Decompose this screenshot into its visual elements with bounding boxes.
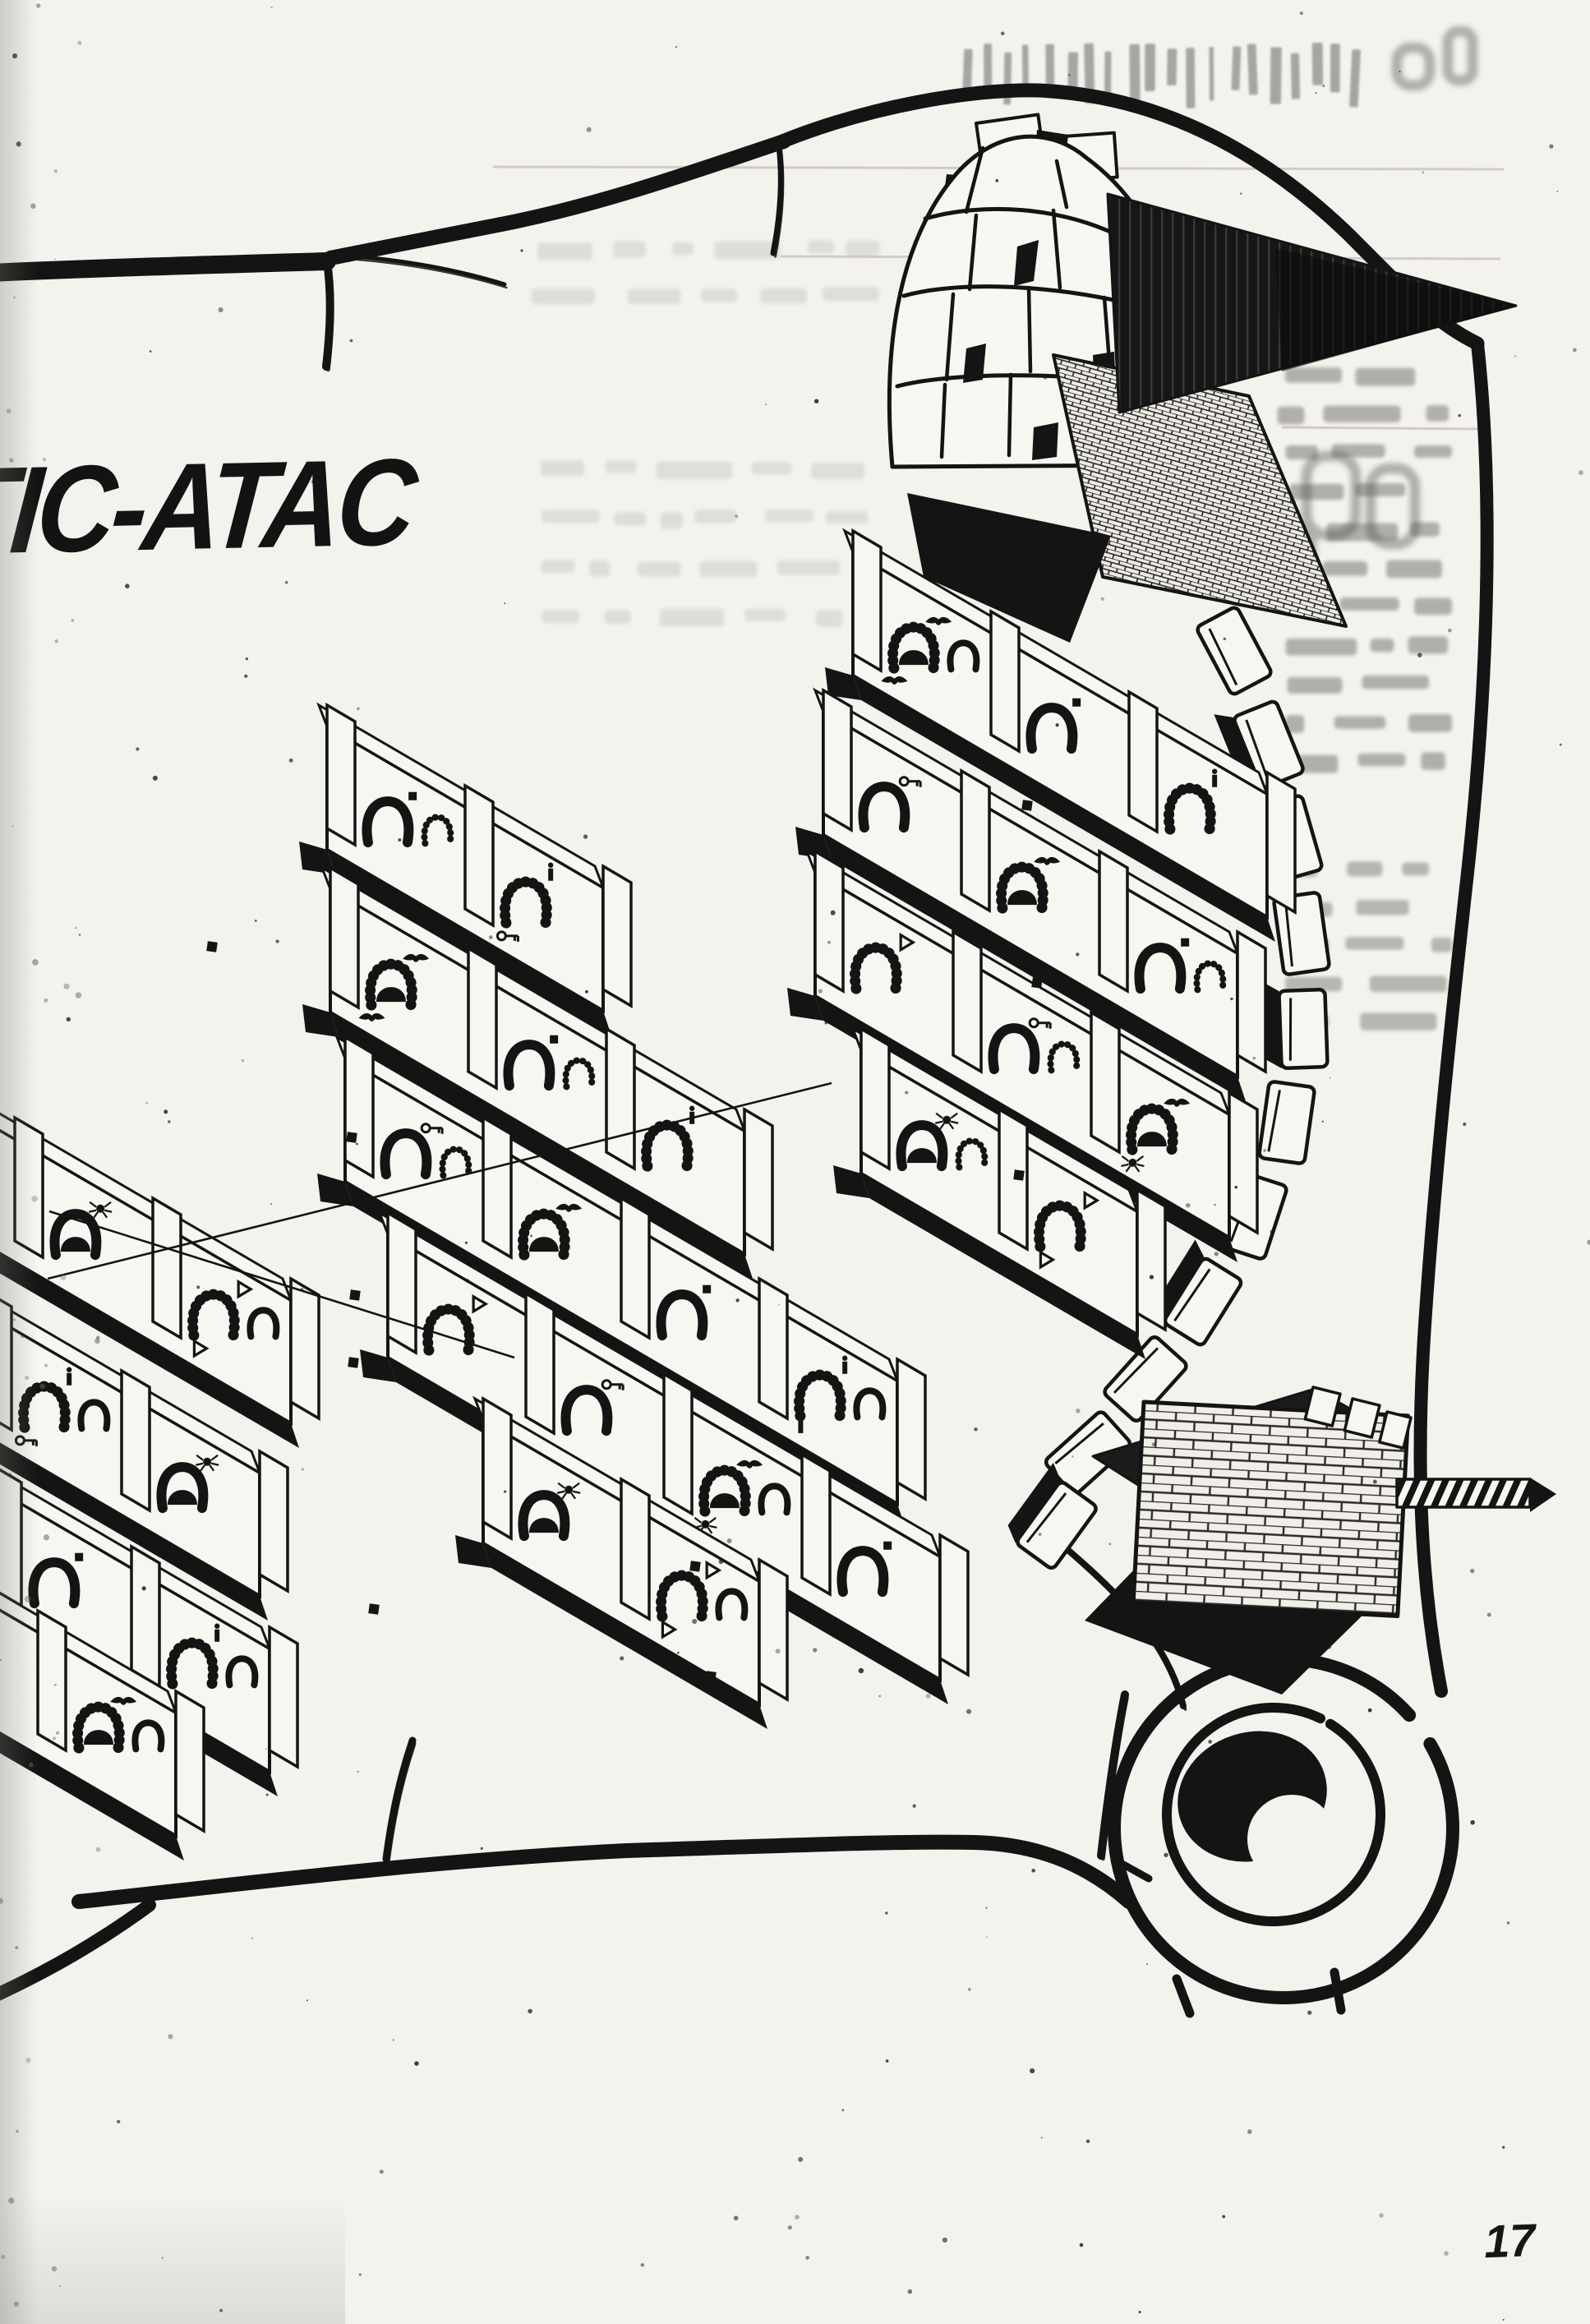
scan-edge-shadow-bottom — [0, 2193, 345, 2324]
scroll-map-illustration — [0, 0, 1590, 2324]
map-cluster-left — [0, 1037, 319, 1861]
page-title: TIC-ATAC — [0, 431, 417, 583]
page-number: 17 — [1483, 2213, 1537, 2268]
scan-edge-shadow — [0, 0, 38, 2324]
striped-pole — [1397, 1479, 1530, 1507]
magazine-page: TIC-ATAC 17 — [0, 0, 1590, 2324]
scroll-curl — [1114, 1659, 1453, 2013]
